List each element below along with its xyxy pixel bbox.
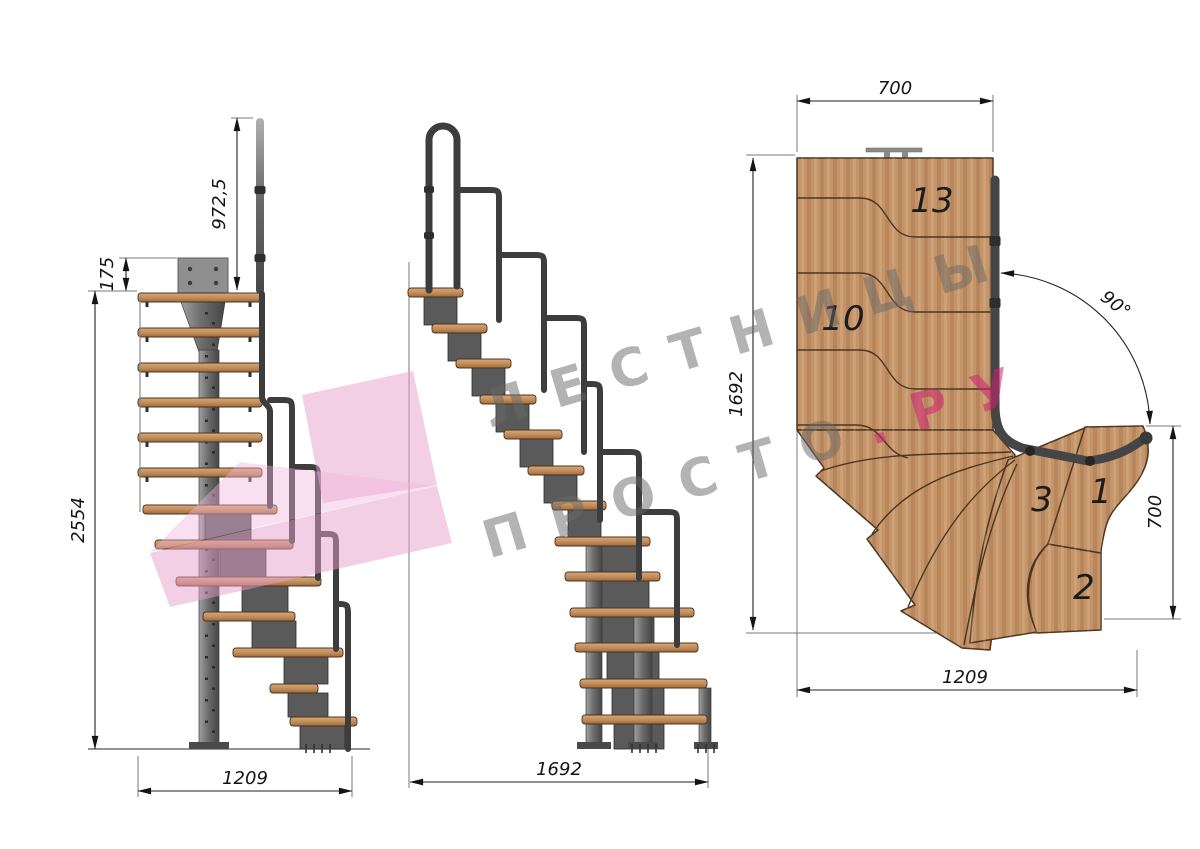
mounting-plate	[178, 258, 228, 294]
step-module	[252, 621, 296, 648]
step-label-13: 13	[910, 181, 953, 221]
step-module	[448, 333, 481, 361]
bolt	[214, 281, 218, 285]
step-module	[284, 657, 328, 684]
rail-joint-sleeve	[424, 186, 434, 193]
bolt	[214, 267, 218, 271]
base-flange	[189, 742, 229, 749]
step-tread	[582, 715, 707, 724]
wall-bracket	[866, 148, 922, 152]
rail-joint-sleeve	[990, 298, 1001, 308]
base-flange	[577, 742, 611, 749]
step-tread	[456, 359, 511, 368]
step-module	[242, 586, 288, 612]
plan-handrail	[990, 180, 1153, 466]
handrail-end-knob	[1140, 432, 1153, 445]
step-module	[597, 581, 649, 609]
rail-joint	[1025, 446, 1035, 456]
dim-plan-bottom-width: 1209	[942, 667, 988, 688]
dim-plan-left-length: 1692	[726, 371, 747, 417]
step-tread	[432, 324, 487, 333]
handrail-segment	[457, 190, 499, 320]
dim-plan-angle: 90°	[1096, 287, 1134, 323]
dim-plan-right-depth: 700	[1145, 495, 1166, 529]
step-tread	[138, 398, 262, 407]
dim-front-plate-offset: 175	[97, 257, 118, 291]
step-label-1: 1	[1090, 472, 1112, 512]
drawing-canvas: 972,5 175 2554 1209	[0, 0, 1200, 849]
rail-joint-sleeve	[255, 254, 266, 262]
handrail-post	[256, 118, 264, 294]
dim-side-length: 1692	[536, 759, 582, 780]
step-module	[288, 693, 328, 717]
rail-joint	[1085, 456, 1095, 466]
step-label-3: 3	[1031, 480, 1053, 520]
rail-joint-sleeve	[424, 232, 434, 239]
dim-plan-top-width: 700	[878, 78, 912, 99]
step-tread	[408, 288, 463, 297]
step-module	[520, 439, 553, 467]
step-tread	[138, 293, 262, 302]
dim-front-width: 1209	[222, 768, 268, 789]
step-tread	[233, 648, 343, 657]
staircase-technical-drawing: 972,5 175 2554 1209	[0, 0, 1200, 849]
bolt	[188, 267, 192, 271]
column-taper	[181, 302, 225, 352]
handrail-loop	[429, 126, 457, 290]
bolt	[188, 281, 192, 285]
step-tread	[580, 679, 707, 688]
step-tread	[138, 363, 262, 372]
step-tread	[138, 433, 262, 442]
step-tread	[270, 684, 318, 693]
step-tread	[138, 328, 262, 337]
step-module	[424, 297, 457, 325]
step-label-2: 2	[1073, 568, 1095, 608]
step-tread	[565, 572, 660, 581]
rail-joint-sleeve	[255, 186, 266, 194]
step-tread	[203, 612, 295, 621]
wall-bracket-tab	[884, 152, 890, 158]
step-tread	[528, 466, 584, 475]
dim-front-total-height: 2554	[68, 497, 89, 543]
wall-bracket-tab	[902, 152, 908, 158]
dim-front-rail-height: 972,5	[209, 178, 230, 230]
